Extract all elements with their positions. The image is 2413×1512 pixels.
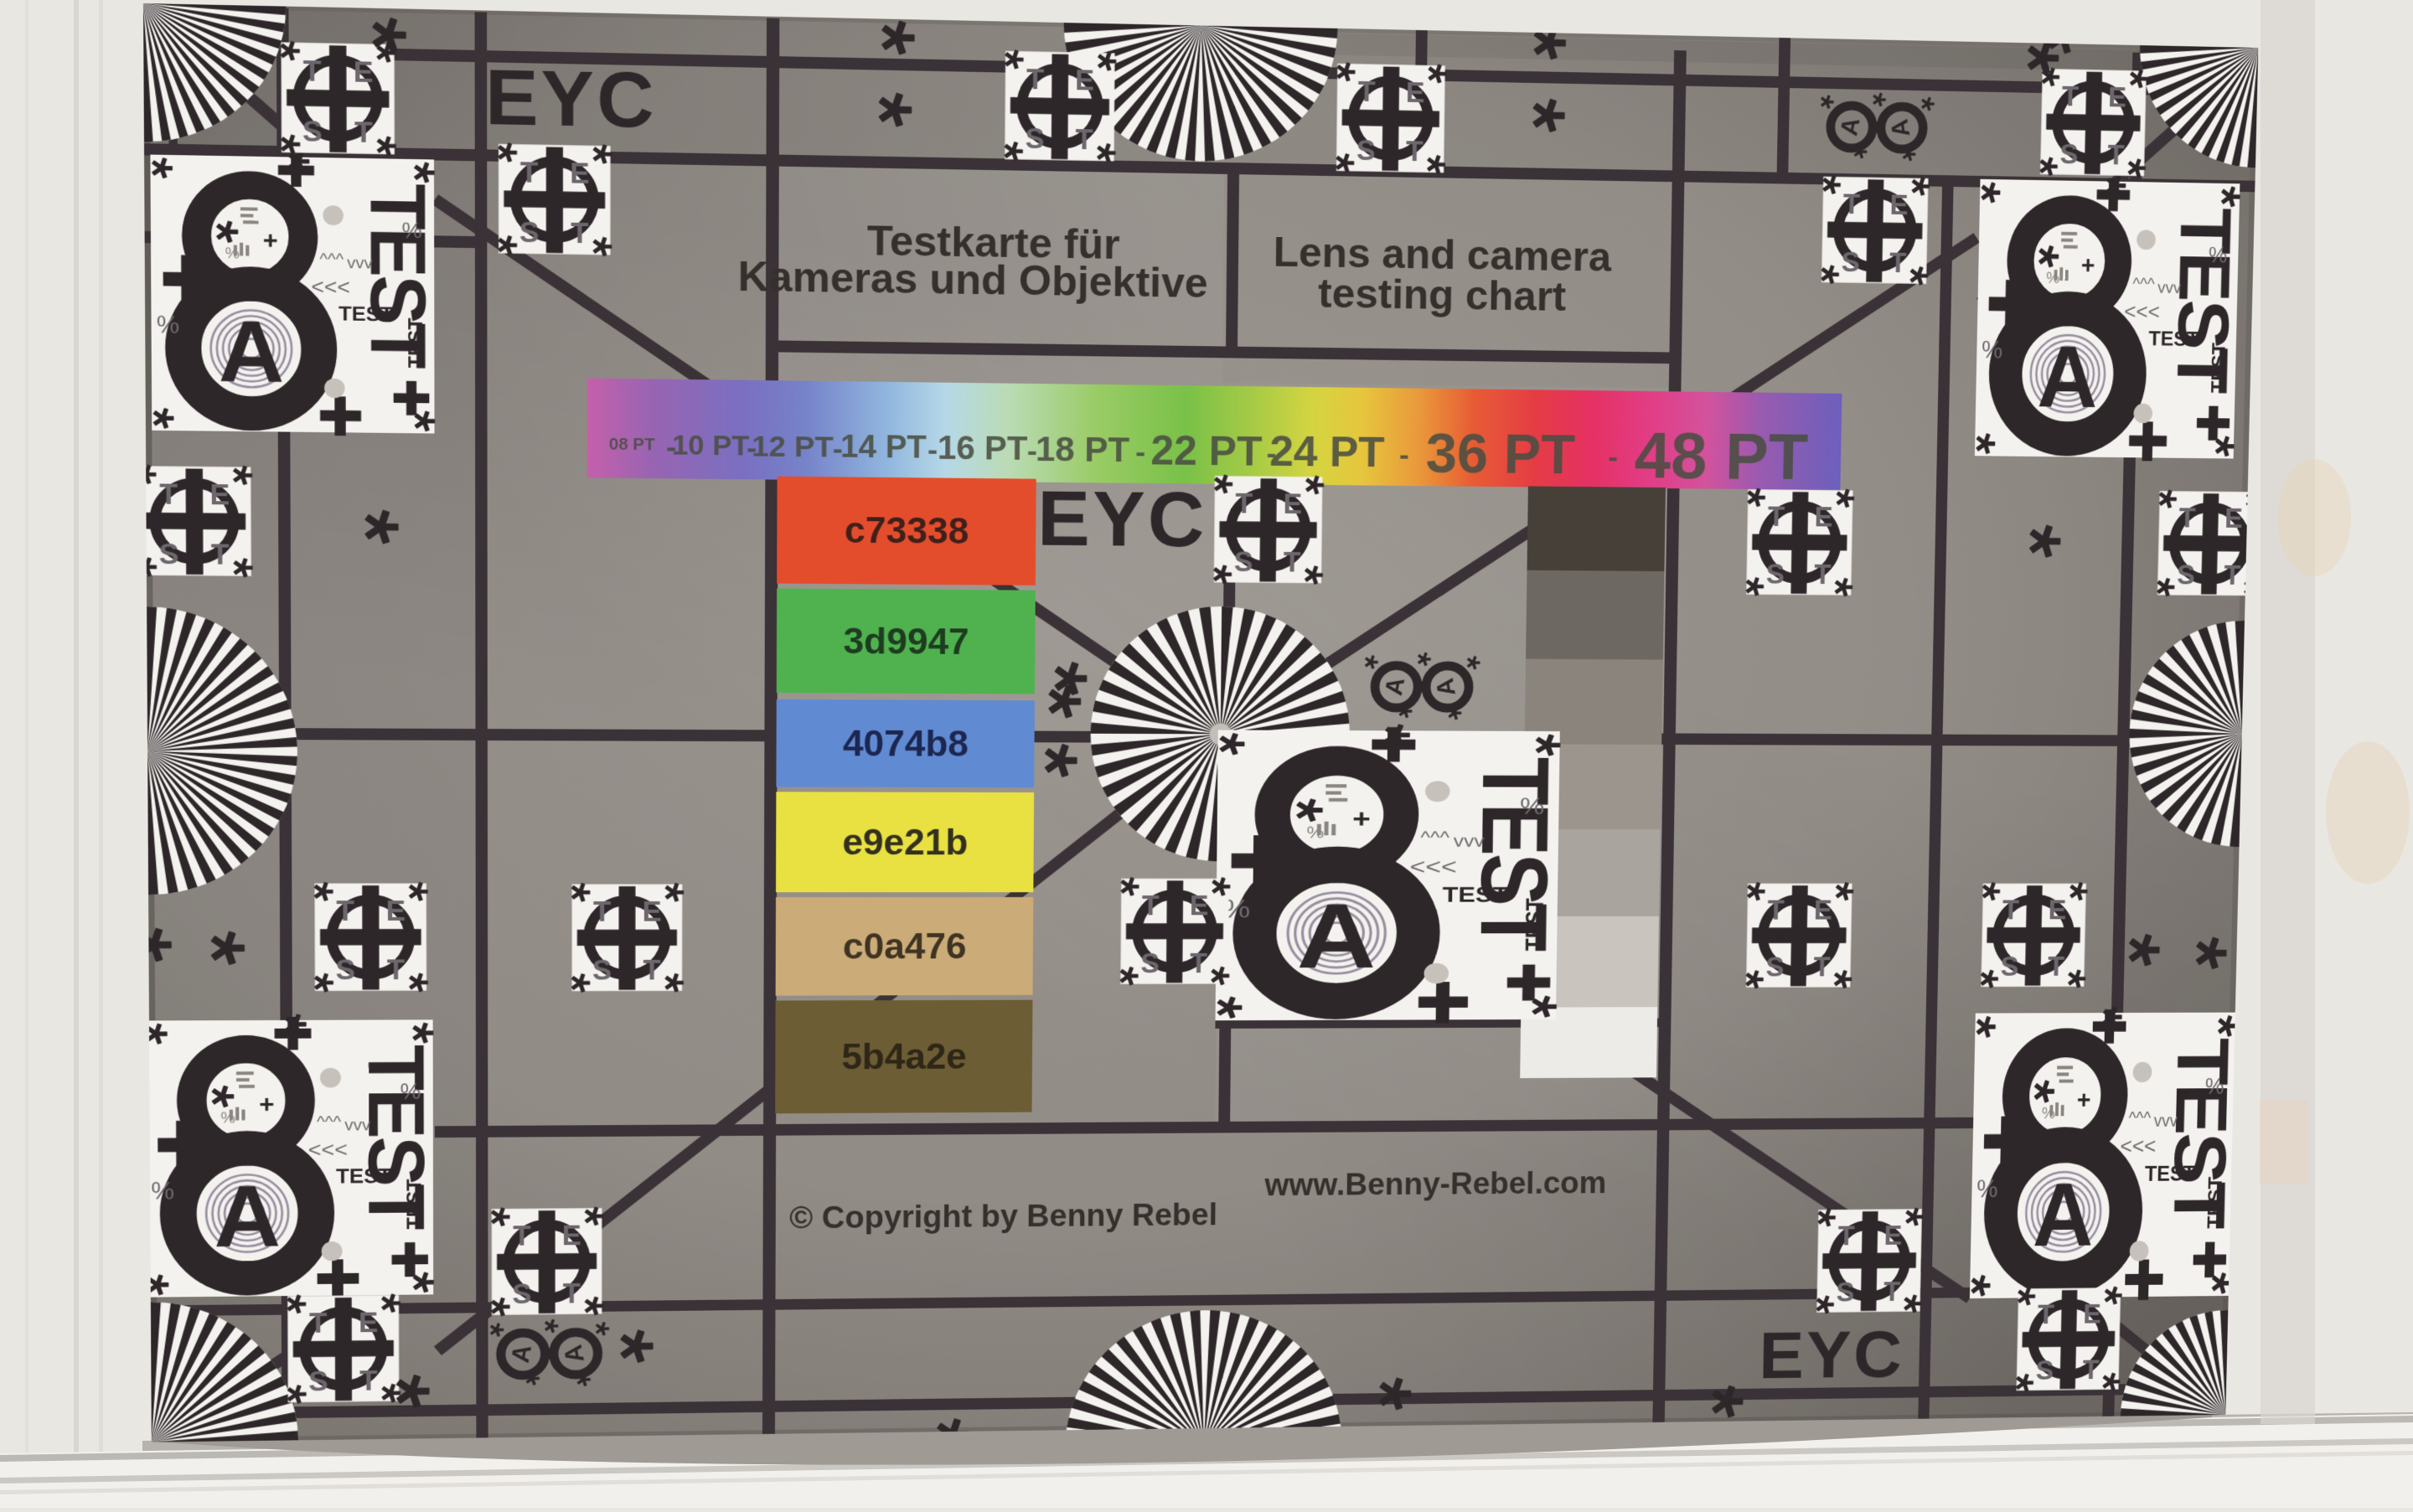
svg-text:48 PT: 48 PT <box>1634 419 1809 493</box>
svg-text:-: - <box>747 431 757 464</box>
svg-text:16 PT: 16 PT <box>938 429 1028 467</box>
svg-text:24 PT: 24 PT <box>1269 427 1385 476</box>
svg-text:www.Benny-Rebel.com: www.Benny-Rebel.com <box>1263 1166 1606 1202</box>
svg-text:4074b8: 4074b8 <box>843 723 969 764</box>
svg-text:-: - <box>833 431 843 465</box>
svg-text:08 PT: 08 PT <box>609 435 655 454</box>
svg-text:EYC: EYC <box>485 54 657 145</box>
svg-text:-: - <box>1266 436 1276 470</box>
svg-text:36 PT: 36 PT <box>1425 421 1575 485</box>
svg-text:-: - <box>1135 435 1145 468</box>
svg-text:© Copyright by Benny Rebel: © Copyright by Benny Rebel <box>789 1198 1217 1236</box>
svg-text:Kameras und Objektive: Kameras und Objektive <box>738 254 1208 307</box>
svg-text:c0a476: c0a476 <box>843 926 967 967</box>
svg-text:testing chart: testing chart <box>1318 271 1567 320</box>
svg-text:-: - <box>666 430 676 463</box>
svg-text:10 PT: 10 PT <box>672 430 750 462</box>
svg-text:5b4a2e: 5b4a2e <box>841 1036 967 1076</box>
svg-text:-: - <box>927 432 938 466</box>
svg-text:-: - <box>1027 434 1037 467</box>
svg-text:14 PT: 14 PT <box>840 429 927 465</box>
svg-text:18 PT: 18 PT <box>1036 430 1130 470</box>
svg-text:EYC: EYC <box>1037 474 1207 563</box>
svg-text:22 PT: 22 PT <box>1150 428 1263 475</box>
svg-text:-: - <box>1399 437 1409 471</box>
svg-text:3d9947: 3d9947 <box>843 621 969 662</box>
svg-text:12 PT: 12 PT <box>752 429 834 463</box>
svg-text:e9e21b: e9e21b <box>842 822 968 862</box>
svg-text:EYC: EYC <box>1759 1317 1905 1393</box>
svg-text:c73338: c73338 <box>845 510 969 552</box>
svg-text:-: - <box>1608 440 1618 472</box>
